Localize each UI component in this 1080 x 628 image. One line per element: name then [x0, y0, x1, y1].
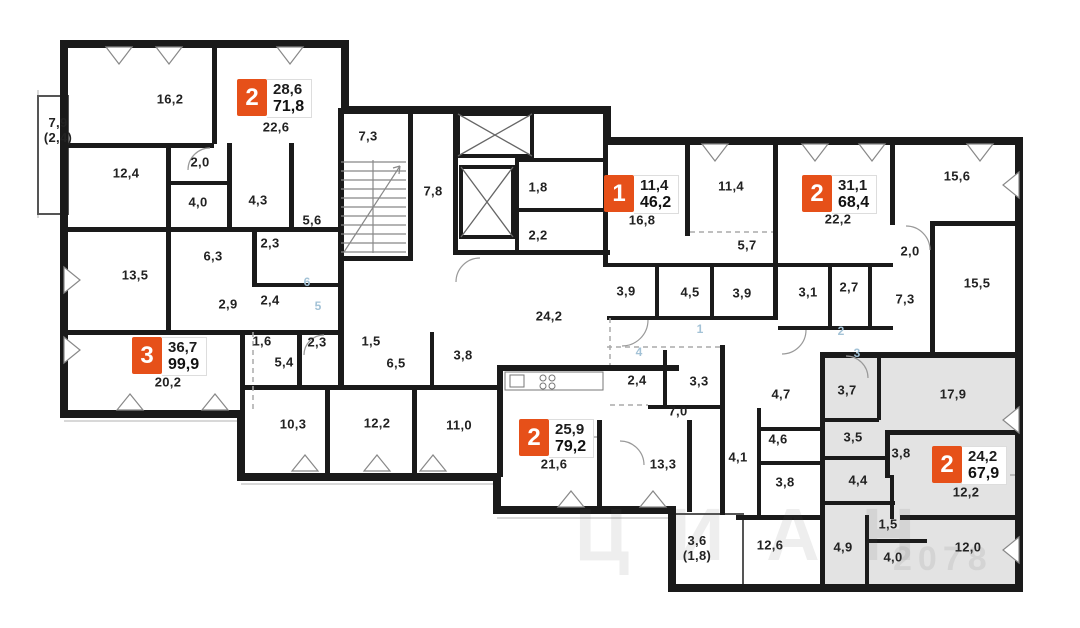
apartment-info: 225,979,2: [519, 419, 594, 458]
total-area-value: 46,2: [640, 194, 671, 212]
apartment-areas: 25,979,2: [549, 419, 594, 458]
room-area-label: 4,0: [884, 551, 903, 566]
room-area-label: 3,1: [799, 286, 818, 301]
room-area-label: 22,6: [263, 121, 290, 136]
room-area-label: 12,4: [113, 167, 140, 182]
apartment-areas: 28,671,8: [267, 79, 312, 118]
room-area-label: 11,4: [718, 180, 744, 195]
living-area-value: 25,9: [555, 421, 586, 438]
room-area-label: 4,9: [834, 541, 853, 556]
room-area-label: 7,3: [359, 130, 378, 145]
room-area-label: 2,3: [308, 336, 327, 351]
room-area-label: 22,2: [825, 213, 852, 228]
room-area-label: 12,6: [757, 539, 784, 554]
section-marker: 6: [304, 275, 311, 289]
room-area-label: 4,7: [772, 388, 791, 403]
room-area-label: 6,3: [204, 250, 223, 265]
living-area-value: 28,6: [273, 81, 304, 98]
apartment-areas: 24,267,9: [962, 446, 1007, 485]
room-area-label: 3,7: [838, 384, 857, 399]
room-area-label: 3,5: [844, 431, 863, 446]
section-marker: 5: [315, 299, 322, 313]
room-area-label: 4,4: [849, 474, 868, 489]
total-area-value: 99,9: [168, 356, 199, 374]
room-area-label: 2,0: [901, 245, 920, 260]
room-area-label: 20,2: [155, 376, 182, 391]
apartment-rooms-badge: 2: [237, 79, 267, 116]
room-area-label: 17,9: [940, 388, 967, 403]
room-area-label: 4,3: [249, 194, 268, 209]
apartment-areas: 36,799,9: [162, 337, 207, 376]
apartment-areas: 11,446,2: [634, 175, 679, 214]
room-area-label: 6,5: [387, 357, 406, 372]
room-area-label: 2,0: [191, 156, 210, 171]
apartment-rooms-badge: 3: [132, 337, 162, 374]
room-area-label: 4,6: [769, 433, 788, 448]
room-area-label: 1,5: [879, 518, 898, 533]
apartment-info: 224,267,9: [932, 446, 1007, 485]
room-area-label: 2,3: [261, 237, 280, 252]
total-area-value: 68,4: [838, 194, 869, 212]
room-area-label: 10,3: [280, 418, 307, 433]
room-area-label: 13,3: [650, 458, 677, 473]
apartment-info: 111,446,2: [604, 175, 679, 214]
room-area-label: 1,5: [362, 335, 381, 350]
apartment-rooms-badge: 2: [519, 419, 549, 456]
room-area-label: 3,9: [733, 287, 752, 302]
living-area-value: 31,1: [838, 177, 869, 194]
room-area-label: 3,3: [690, 375, 709, 390]
room-area-label: 12,2: [953, 486, 980, 501]
living-area-value: 36,7: [168, 339, 199, 356]
room-area-label: 2,9: [219, 298, 238, 313]
apartment-rooms-badge: 1: [604, 175, 634, 212]
living-area-value: 11,4: [640, 177, 671, 194]
apartment-info: 228,671,8: [237, 79, 312, 118]
room-area-label: 1,8: [529, 181, 548, 196]
room-area-label: 7,8: [424, 185, 443, 200]
room-area-label: 2,2: [529, 229, 548, 244]
room-area-label: 2,4: [628, 374, 647, 389]
room-area-label: 16,8: [629, 214, 656, 229]
room-area-label: 1,6: [253, 335, 272, 350]
room-area-label: 5,6: [303, 214, 322, 229]
room-area-label: 3,6 (1,8): [683, 534, 711, 564]
room-area-label: 11,0: [446, 419, 472, 434]
room-area-label: 3,8: [776, 476, 795, 491]
total-area-value: 71,8: [273, 98, 304, 116]
labels-layer: 16,27,9 (2,4)12,422,62,04,04,35,62,36,31…: [0, 0, 1080, 628]
room-area-label: 21,6: [541, 458, 568, 473]
room-area-label: 12,0: [955, 541, 982, 556]
room-area-label: 2,7: [840, 281, 859, 296]
room-area-label: 15,5: [964, 277, 991, 292]
apartment-areas: 31,168,4: [832, 175, 877, 214]
apartment-rooms-badge: 2: [932, 446, 962, 483]
room-area-label: 13,5: [122, 269, 149, 284]
apartment-info: 231,168,4: [802, 175, 877, 214]
room-area-label: 4,1: [729, 451, 748, 466]
section-marker: 4: [636, 345, 643, 359]
living-area-value: 24,2: [968, 448, 999, 465]
section-marker: 1: [697, 322, 704, 336]
room-area-label: 7,3: [896, 293, 915, 308]
section-marker: 3: [854, 346, 861, 360]
room-area-label: 15,6: [944, 170, 971, 185]
room-area-label: 7,0: [669, 405, 688, 420]
room-area-label: 5,7: [738, 239, 757, 254]
room-area-label: 24,2: [536, 310, 563, 325]
room-area-label: 16,2: [157, 93, 184, 108]
room-area-label: 3,8: [454, 349, 473, 364]
room-area-label: 3,9: [617, 285, 636, 300]
room-area-label: 2,4: [261, 294, 280, 309]
total-area-value: 79,2: [555, 438, 586, 456]
room-area-label: 4,0: [189, 196, 208, 211]
room-area-label: 4,5: [681, 286, 700, 301]
total-area-value: 67,9: [968, 465, 999, 483]
room-area-label: 3,8: [892, 447, 911, 462]
apartment-info: 336,799,9: [132, 337, 207, 376]
room-area-label: 12,2: [364, 417, 391, 432]
floor-plan: 16,27,9 (2,4)12,422,62,04,04,35,62,36,31…: [0, 0, 1080, 628]
room-area-label: 7,9 (2,4): [44, 116, 72, 146]
room-area-label: 5,4: [275, 356, 294, 371]
apartment-rooms-badge: 2: [802, 175, 832, 212]
section-marker: 2: [838, 324, 845, 338]
